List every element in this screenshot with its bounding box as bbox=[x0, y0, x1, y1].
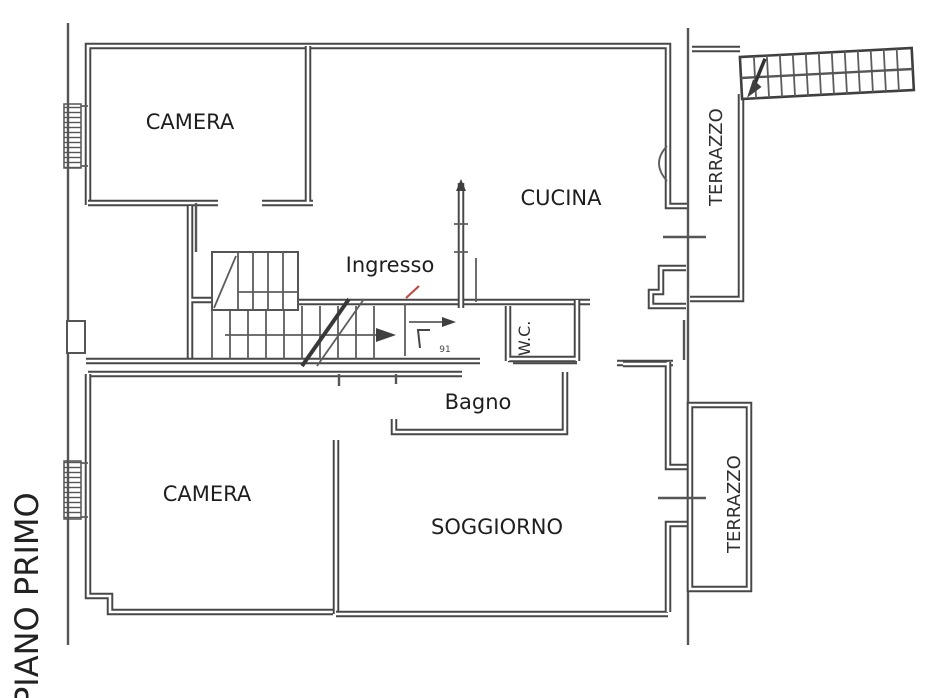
external-staircase bbox=[740, 48, 914, 99]
room-label-bagno: Bagno bbox=[445, 390, 512, 414]
room-label-camera-top: CAMERA bbox=[146, 110, 235, 134]
wall-pillar-left bbox=[67, 321, 85, 353]
background bbox=[0, 0, 930, 698]
room-label-terrazzo-bottom: TERRAZZO bbox=[724, 455, 745, 554]
room-label-soggiorno: SOGGIORNO bbox=[431, 515, 563, 539]
stair-upper-flight bbox=[212, 252, 298, 310]
room-label-terrazzo-top: TERRAZZO bbox=[706, 108, 727, 207]
room-label-ingresso: Ingresso bbox=[346, 253, 435, 277]
door-width-label: 91 bbox=[439, 345, 450, 355]
room-label-wc: W.C. bbox=[515, 321, 534, 356]
room-label-camera-bottom: CAMERA bbox=[163, 482, 252, 506]
floor-title: PIANO PRIMO bbox=[8, 492, 46, 698]
floor-plan: 91 CAMERA CUCINA Ingresso Bagno CAMERA S… bbox=[0, 0, 930, 698]
room-label-cucina: CUCINA bbox=[521, 186, 603, 210]
